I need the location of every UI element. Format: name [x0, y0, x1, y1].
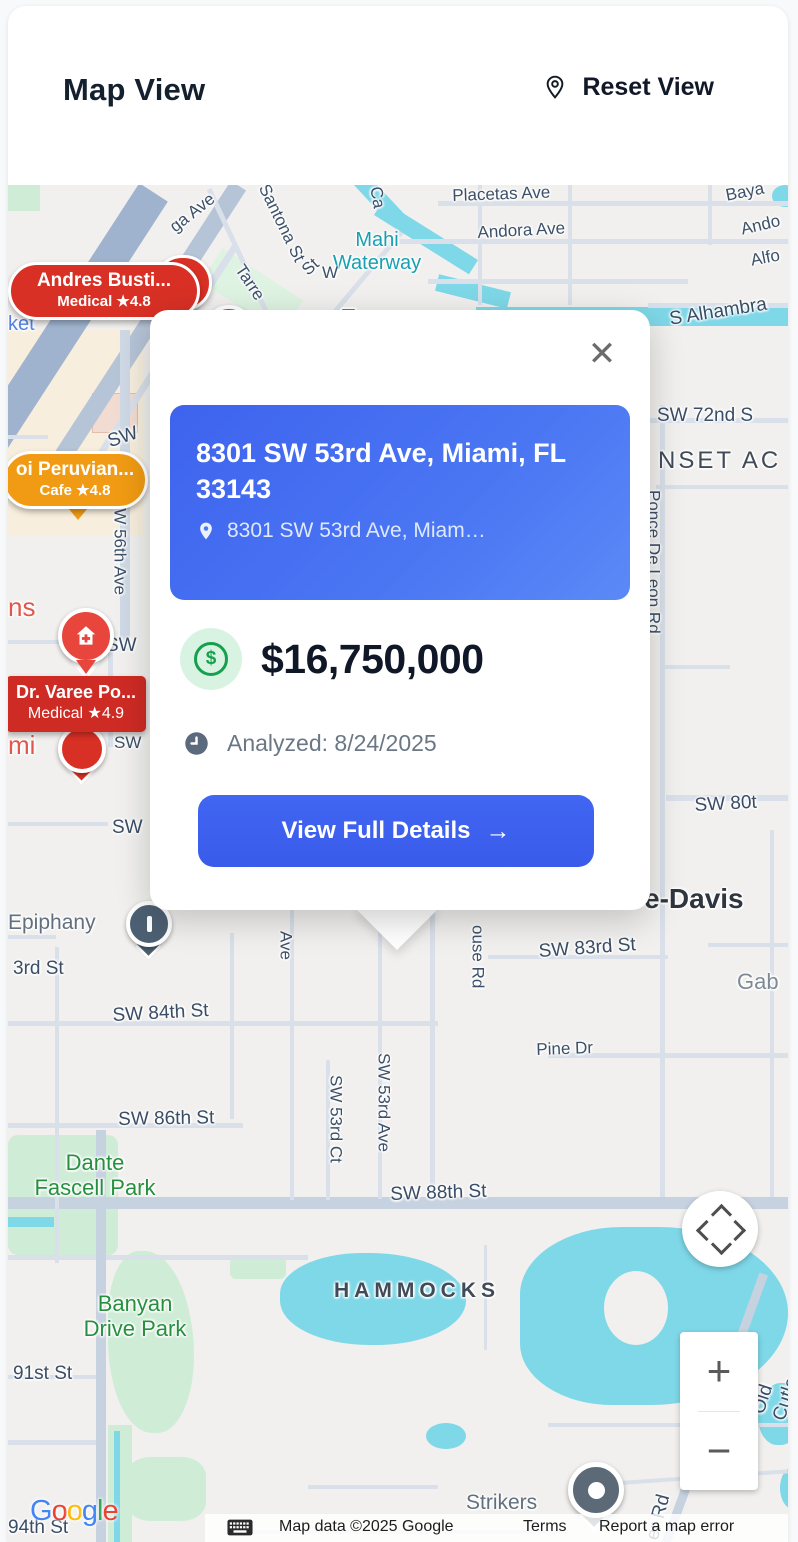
terms-link[interactable]: Terms: [523, 1518, 567, 1536]
page-title: Map View: [63, 72, 205, 108]
map-label: SW 72nd S: [657, 405, 753, 427]
map-geometry: [55, 947, 59, 1263]
popup-title: 8301 SW 53rd Ave, Miami, FL 33143: [196, 435, 604, 507]
map-geometry: [126, 1457, 206, 1521]
map-label: Epiphany: [8, 911, 96, 935]
map-geometry: [8, 1255, 308, 1260]
map-geometry: [8, 1021, 438, 1026]
map-label: 91st St: [13, 1363, 72, 1385]
map-geometry: [604, 1271, 668, 1345]
google-logo[interactable]: Google: [30, 1495, 118, 1528]
map-geometry: [8, 185, 40, 211]
pan-up-icon[interactable]: [711, 1204, 732, 1225]
map-label: SW 53rd Ave: [374, 1053, 394, 1152]
map-label: NSET AC: [658, 447, 781, 475]
map-view-page: Map View Reset View Placetas AveAndora A…: [0, 0, 798, 1542]
map-label: Gab: [737, 969, 779, 994]
map-geometry: [568, 185, 572, 305]
map-label: Placetas Ave: [452, 185, 551, 206]
map-geometry: [308, 1485, 438, 1489]
map-geometry: [708, 943, 788, 947]
price-row: $ $16,750,000: [180, 628, 484, 690]
medical-house-icon: [73, 623, 99, 649]
report-map-error-link[interactable]: Report a map error: [599, 1518, 734, 1536]
map-geometry: [8, 1440, 104, 1445]
dollar-icon: $: [180, 628, 242, 690]
pan-control[interactable]: [682, 1191, 758, 1267]
map-geometry: [656, 485, 788, 489]
map-label: Ca: [366, 185, 389, 210]
map-geometry: [430, 885, 435, 1199]
marker-peruvian-meta: Cafe ★4.8: [15, 481, 135, 499]
map-label: SW 88th St: [390, 1181, 487, 1206]
marker-varee-name: Dr. Varee Po...: [14, 682, 138, 703]
arrow-right-icon: →: [485, 817, 510, 846]
map-geometry: [108, 1251, 194, 1433]
map-geometry: [428, 279, 688, 284]
map-canvas[interactable]: Placetas AveAndora AveMahi WaterwayBayaA…: [8, 185, 788, 1542]
map-label: HAMMOCKS: [334, 1279, 500, 1303]
pan-down-icon[interactable]: [711, 1234, 732, 1255]
property-popup: ✕ 8301 SW 53rd Ave, Miami, FL 33143 8301…: [150, 310, 650, 910]
view-full-details-button[interactable]: View Full Details →: [198, 795, 594, 867]
map-geometry: [8, 1217, 54, 1227]
map-geometry: [230, 1257, 286, 1279]
marker-medical-pin[interactable]: [58, 608, 114, 664]
map-label: SW 56th Ave: [110, 497, 130, 595]
marker-peruvian[interactable]: oi Peruvian... Cafe ★4.8: [8, 451, 148, 509]
marker-varee-pin[interactable]: [58, 725, 106, 773]
popup-address: 8301 SW 53rd Ave, Miam…: [227, 519, 486, 543]
map-label: SW: [114, 733, 141, 753]
map-label: Strikers: [466, 1491, 537, 1515]
analyzed-date: Analyzed: 8/24/2025: [227, 730, 437, 757]
map-label: SW 86th St: [118, 1107, 214, 1131]
reset-view-button[interactable]: Reset View: [542, 72, 714, 102]
map-geometry: [770, 830, 774, 1197]
attribution-bar: Map data ©2025 Google Terms Report a map…: [205, 1514, 788, 1542]
marker-medical-tail: [76, 660, 96, 674]
church-icon: [147, 916, 152, 932]
zoom-control: + −: [680, 1332, 758, 1490]
google-logo-letter: o: [67, 1495, 82, 1527]
marker-varee[interactable]: Dr. Varee Po... Medical ★4.9: [8, 676, 146, 732]
google-logo-letter: o: [52, 1495, 67, 1527]
map-geometry: [426, 1423, 466, 1449]
map-label: e-Davis: [644, 883, 744, 915]
reset-view-label: Reset View: [582, 73, 714, 102]
google-logo-letter: e: [102, 1495, 117, 1527]
map-label: 3rd St: [13, 958, 64, 980]
map-label: ns: [8, 593, 35, 623]
map-label: Alfo: [749, 245, 781, 270]
map-geometry: [230, 933, 234, 1119]
header: Map View Reset View: [8, 6, 788, 185]
map-label: Banyan Drive Park: [84, 1291, 187, 1342]
pan-right-icon[interactable]: [725, 1220, 746, 1241]
map-geometry: [8, 822, 108, 826]
map-geometry: [708, 185, 712, 245]
map-geometry: [660, 665, 730, 669]
property-price: $16,750,000: [261, 636, 484, 683]
map-label: W: [322, 263, 338, 283]
keyboard-icon[interactable]: [227, 1519, 253, 1536]
location-pin-icon: [542, 72, 568, 102]
marker-andres-name: Andres Busti...: [21, 270, 187, 292]
map-label: Ando: [739, 211, 782, 239]
map-label: mi: [8, 731, 35, 761]
marker-andres-meta: Medical ★4.8: [21, 292, 187, 310]
map-label: SW: [112, 817, 143, 839]
google-logo-letter: g: [82, 1495, 97, 1527]
pan-left-icon[interactable]: [696, 1220, 717, 1241]
marker-strikers-pin[interactable]: [568, 1462, 624, 1518]
map-label: ouse Rd: [468, 925, 488, 988]
map-label: Mahi Waterway: [333, 229, 421, 275]
map-label: Ave: [276, 931, 296, 960]
map-geometry: [8, 935, 56, 939]
analyzed-row: Analyzed: 8/24/2025: [183, 730, 437, 757]
map-geometry: [8, 435, 48, 439]
zoom-in-button[interactable]: +: [680, 1332, 758, 1410]
map-label: Pine Dr: [536, 1038, 593, 1060]
map-label: Dante Fascell Park: [34, 1150, 155, 1201]
marker-varee-meta: Medical ★4.9: [14, 703, 138, 723]
strikers-pin-dot: [588, 1482, 605, 1499]
zoom-out-button[interactable]: −: [680, 1412, 758, 1490]
view-full-details-label: View Full Details: [282, 817, 471, 845]
marker-peruvian-name: oi Peruvian...: [15, 459, 135, 481]
map-label: SW 80t: [694, 792, 757, 817]
map-label: Santona St: [254, 185, 308, 265]
map-data-attribution: Map data ©2025 Google: [279, 1518, 454, 1536]
dollar-glyph: $: [194, 642, 228, 676]
google-logo-letter: G: [30, 1495, 52, 1527]
popup-address-header: 8301 SW 53rd Ave, Miami, FL 33143 8301 S…: [170, 405, 630, 600]
close-icon[interactable]: ✕: [582, 334, 622, 374]
pin-icon: [196, 519, 216, 543]
popup-address-row: 8301 SW 53rd Ave, Miam…: [196, 519, 604, 543]
clock-icon: [183, 730, 210, 757]
map-label: SW 53rd Ct: [326, 1075, 346, 1163]
map-view-card: Map View Reset View Placetas AveAndora A…: [8, 6, 788, 1542]
